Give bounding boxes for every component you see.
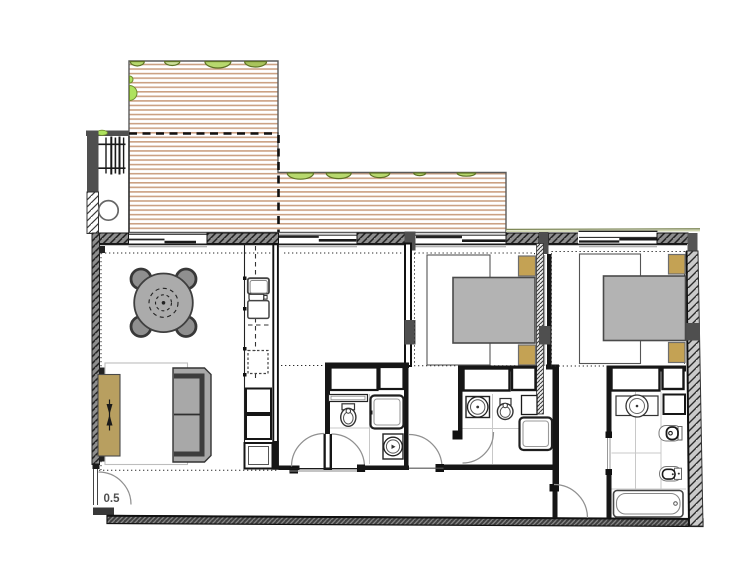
- svg-text:0.5: 0.5: [104, 493, 121, 505]
